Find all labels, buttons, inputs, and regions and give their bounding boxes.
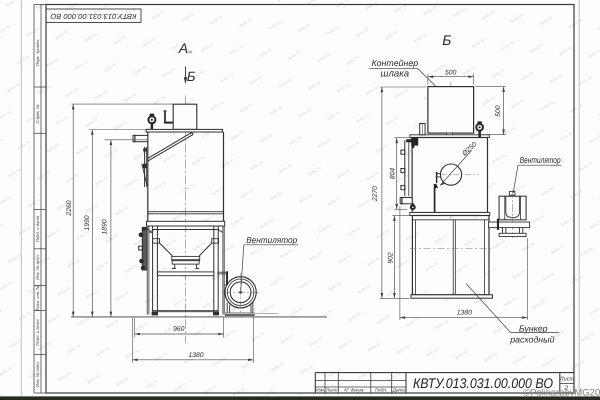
svg-text:Взам. инв. №: Взам. инв. № bbox=[35, 285, 40, 311]
svg-text:Справ. №: Справ. № bbox=[35, 104, 40, 123]
svg-text:Инв. № подл.: Инв. № подл. bbox=[35, 361, 40, 387]
svg-text:Б: Б bbox=[187, 69, 196, 84]
svg-text:N° докум.: N° докум. bbox=[344, 388, 364, 393]
svg-text:Б: Б bbox=[442, 32, 451, 48]
svg-text:(м): (м) bbox=[188, 50, 193, 54]
svg-text:Бункер: Бункер bbox=[519, 323, 548, 333]
svg-text:©PolikarpovMG2021: ©PolikarpovMG2021 bbox=[523, 388, 600, 399]
svg-text:Подп.: Подп. bbox=[375, 388, 387, 393]
svg-text:КВТУ.013.031.00.000 ВО: КВТУ.013.031.00.000 ВО bbox=[50, 12, 136, 21]
svg-text:1380: 1380 bbox=[188, 352, 203, 359]
svg-text:902: 902 bbox=[388, 252, 395, 264]
svg-text:1380: 1380 bbox=[457, 310, 472, 317]
svg-text:расходный: расходный bbox=[509, 335, 554, 345]
svg-text:1990: 1990 bbox=[84, 215, 91, 230]
svg-text:Лист: Лист bbox=[559, 377, 575, 383]
svg-text:Контейнер: Контейнер bbox=[371, 58, 418, 68]
svg-text:Инв. № дубл.: Инв. № дубл. bbox=[35, 254, 40, 280]
svg-text:Перв. примен.: Перв. примен. bbox=[35, 39, 40, 67]
svg-text:Изм.: Изм. bbox=[315, 388, 325, 393]
svg-text:500: 500 bbox=[445, 70, 457, 77]
svg-text:Дата: Дата bbox=[392, 388, 406, 393]
svg-text:Подп. и дата: Подп. и дата bbox=[35, 319, 40, 346]
svg-text:804: 804 bbox=[390, 168, 397, 180]
svg-text:1890: 1890 bbox=[102, 219, 109, 234]
svg-text:960: 960 bbox=[173, 326, 185, 333]
svg-text:Вентилятор: Вентилятор bbox=[246, 235, 297, 245]
svg-text:Подп. и дата: Подп. и дата bbox=[35, 215, 40, 242]
svg-text:2260: 2260 bbox=[66, 200, 73, 216]
svg-text:шлака: шлака bbox=[381, 69, 410, 80]
svg-text:Вентилятор: Вентилятор bbox=[520, 155, 561, 165]
svg-text:2270: 2270 bbox=[372, 186, 379, 202]
svg-text:500: 500 bbox=[495, 105, 502, 117]
svg-text:Лист: Лист bbox=[325, 388, 338, 393]
